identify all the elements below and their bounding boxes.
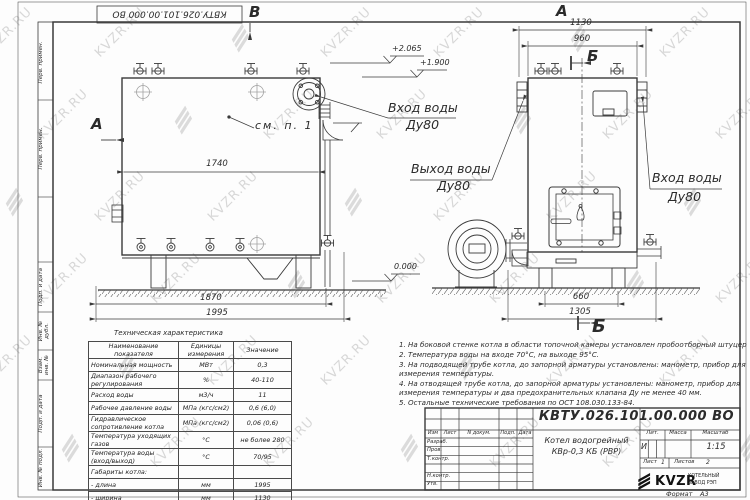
tb-col-podp: Подп. (499, 431, 517, 436)
kvzr-logo-icon (636, 473, 655, 490)
dimensions (96, 23, 722, 330)
table-row: Рабочее давление водыМПа (кгс/см2)0,6 (6… (89, 402, 292, 415)
table-cell: Диапазон рабочего регулирования (89, 372, 179, 389)
drawing-sheet: KVZR.RUKVZR.RUKVZR.RUKVZR.RUKVZR.RUKVZR.… (0, 0, 750, 500)
section-marker-b-top: Б (587, 49, 598, 65)
tech-table: Наименование показателя Единицы измерени… (88, 341, 292, 500)
table-cell (179, 466, 234, 479)
frame-cell-podp-data-2: Подп. и дата (39, 380, 45, 447)
inlet-label-front-2: Ду80 (406, 118, 439, 131)
table-cell: не более 280 (234, 432, 292, 449)
table-cell: - длина (89, 479, 179, 492)
tb-lit-value: И (640, 443, 648, 451)
table-row: Гидравлическое сопротивление котлаМПа (к… (89, 415, 292, 432)
table-cell: °С (179, 449, 234, 466)
frame-cell-inv-dubl: Инв. № дубл. (39, 312, 50, 350)
tb-scale-value: 1:15 (695, 443, 737, 452)
table-row: Габариты котла: (89, 466, 292, 479)
tb-row-utv: Утв. (427, 482, 438, 487)
table-cell: м3/ч (179, 389, 234, 402)
outlet-label-2: Ду80 (437, 179, 470, 192)
format-value: А3 (700, 491, 709, 498)
frame-cell-perv-primen: Перв. примен. (39, 25, 45, 100)
note-4: 4. На отводящей трубе котла, до запорной… (399, 379, 750, 397)
table-cell: 0,6 (6,0) (234, 402, 292, 415)
dim-1305: 1305 (560, 308, 600, 317)
inlet-label-side-2: Ду80 (668, 190, 701, 203)
table-cell: 1130 (234, 492, 292, 500)
table-cell: МПа (кгс/см2) (179, 415, 234, 432)
table-cell: мм (179, 492, 234, 500)
inlet-label-front-1: Вход воды (388, 101, 458, 114)
table-row: - длинамм1995 (89, 479, 292, 492)
table-cell: Габариты котла: (89, 466, 179, 479)
tb-row-nkontr: Н.контр. (427, 474, 450, 479)
table-cell: Номинальная мощность (89, 359, 179, 372)
format-label: Формат (666, 491, 692, 498)
notes-block: 1. На боковой стенке котла в области топ… (399, 340, 750, 409)
doc-number: КВТУ.026.101.00.000 ВО (535, 410, 738, 424)
front-view (98, 64, 386, 298)
tb-row-tkontr: Т.контр. (427, 457, 449, 462)
frame-cell-sprav: Перв. примен. (39, 100, 45, 197)
tb-sheets-label: Листов (674, 460, 695, 466)
table-cell: Гидравлическое сопротивление котла (89, 415, 179, 432)
tech-col-units: Единицы измерения (179, 342, 234, 359)
tb-col-dokum: N докум. (459, 431, 499, 436)
table-cell: Температура воды (вход/выход) (89, 449, 179, 466)
table-cell: 11 (234, 389, 292, 402)
tb-sheets-value: 2 (706, 460, 710, 466)
tb-scale-label: Масштаб (691, 431, 740, 437)
company-name-1: КОТЕЛЬНЫЙ (688, 474, 719, 479)
table-row: Температура уходящих газов°Сне более 280 (89, 432, 292, 449)
table-cell: МВт (179, 359, 234, 372)
table-row: Диапазон рабочего регулирования%40-110 (89, 372, 292, 389)
note-1: 1. На боковой стенке котла в области топ… (399, 340, 750, 349)
table-cell: 70/95 (234, 449, 292, 466)
elev-mid: +1.900 (420, 59, 450, 67)
inlet-label-side-1: Вход воды (652, 171, 722, 184)
tech-col-value: Значение (234, 342, 292, 359)
note-2: 2. Температура воды на входе 70°С, на вы… (399, 350, 750, 359)
view-marker-a-side: А (556, 4, 568, 20)
table-cell: Температура уходящих газов (89, 432, 179, 449)
view-marker-v: В (249, 5, 260, 21)
table-cell: - ширина (89, 492, 179, 500)
see-note-label: см. п. 1 (255, 120, 314, 132)
table-cell: °С (179, 432, 234, 449)
dim-660: 660 (563, 293, 599, 302)
table-cell: 0,3 (234, 359, 292, 372)
table-cell: Рабочее давление воды (89, 402, 179, 415)
dim-1740: 1740 (197, 160, 237, 169)
table-cell: мм (179, 479, 234, 492)
product-name-2: КВр-0,3 КБ (РВР) (535, 448, 638, 456)
doc-number-inverted: КВТУ.026.101.00.000 ВО (98, 8, 241, 17)
table-cell: 40-110 (234, 372, 292, 389)
tb-sheet-label: Лист (643, 460, 657, 466)
tb-col-list: Лист (441, 431, 459, 436)
tb-lit-label: Лит. (640, 431, 665, 437)
frame-cell-podp-data-1: Подп. и дата (39, 262, 45, 312)
dim-960: 960 (564, 35, 600, 44)
table-cell: МПа (кгс/см2) (179, 402, 234, 415)
tb-sheet-value: 1 (661, 460, 665, 466)
table-cell (234, 466, 292, 479)
table-row: - ширинамм1130 (89, 492, 292, 500)
outlet-label-1: Выход воды (411, 162, 491, 175)
frame-cell-inv-podl: Инв. № подл. (39, 447, 45, 489)
tb-col-data: Дата (517, 431, 533, 436)
table-cell: % (179, 372, 234, 389)
tech-table-title: Техническая характеристика (114, 330, 223, 337)
dim-1870: 1870 (191, 294, 231, 303)
elev-high: +2.065 (392, 45, 422, 53)
table-cell: 1995 (234, 479, 292, 492)
tb-mass-label: Масса (665, 431, 691, 437)
table-row: Номинальная мощностьМВт0,3 (89, 359, 292, 372)
dim-1995: 1995 (197, 309, 237, 318)
tech-col-name: Наименование показателя (89, 342, 179, 359)
table-row: Температура воды (вход/выход)°С70/95 (89, 449, 292, 466)
elev-zero: 0.000 (394, 263, 417, 271)
dim-1130: 1130 (563, 19, 599, 28)
note-3: 3. На подводящей трубе котла, до запорно… (399, 360, 750, 378)
product-name-1: Котел водогрейный (535, 437, 638, 445)
tb-row-razrab: Разраб. (427, 440, 447, 445)
table-cell: 0,06 (0,6) (234, 415, 292, 432)
company-name-2: ЗАВОД РЭП (688, 481, 717, 486)
tb-row-prov: Пров. (427, 448, 442, 453)
table-cell: Расход воды (89, 389, 179, 402)
tb-col-izm: Изм (425, 431, 441, 436)
section-marker-b-bottom: Б (592, 318, 606, 337)
frame-cell-vzam-inv: Взам. инв. № (39, 350, 50, 380)
view-marker-a-front: А (91, 117, 103, 133)
table-row: Расход водым3/ч11 (89, 389, 292, 402)
note-5: 5. Остальные технические требования по О… (399, 398, 750, 407)
